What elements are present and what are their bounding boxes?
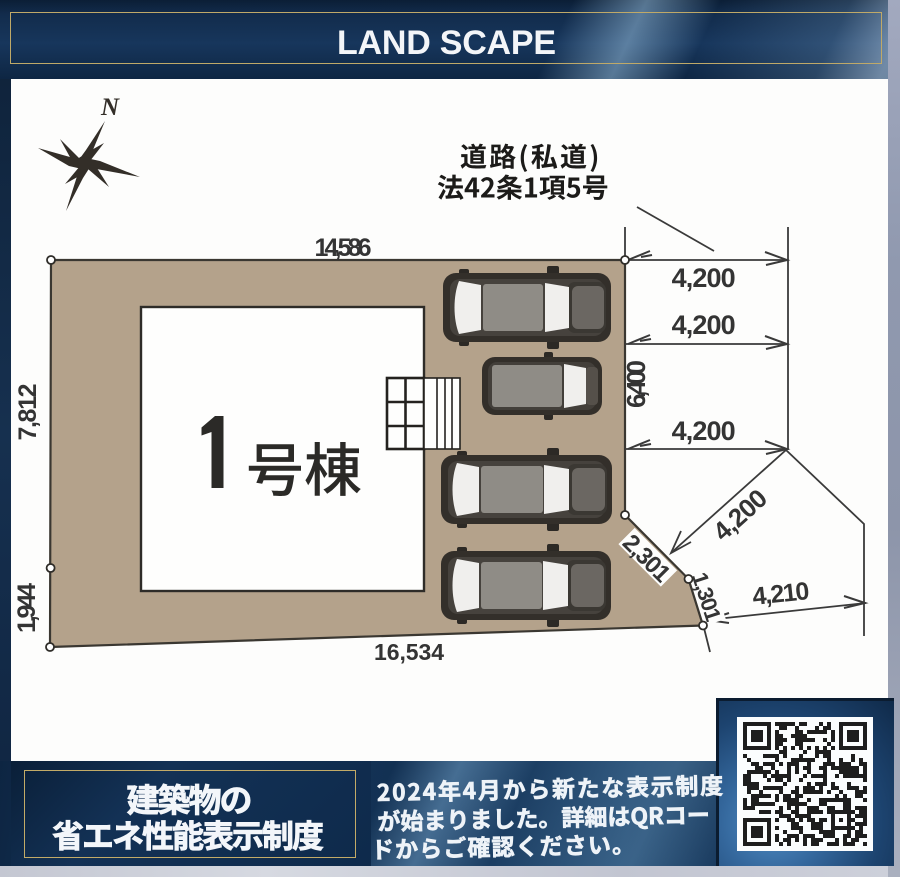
svg-text:LAND SCAPE: LAND SCAPE (337, 24, 556, 62)
svg-text:7,812: 7,812 (14, 384, 42, 441)
svg-text:4,200: 4,200 (672, 263, 736, 293)
svg-text:6,400: 6,400 (621, 360, 651, 408)
svg-text:16,534: 16,534 (374, 639, 444, 665)
svg-text:4,200: 4,200 (672, 416, 736, 446)
svg-text:4,200: 4,200 (707, 483, 773, 547)
svg-text:N: N (100, 94, 120, 121)
svg-text:4,200: 4,200 (672, 310, 736, 340)
svg-text:1,944: 1,944 (13, 583, 41, 633)
svg-text:14,586: 14,586 (315, 234, 372, 262)
svg-text:4,210: 4,210 (751, 577, 811, 611)
